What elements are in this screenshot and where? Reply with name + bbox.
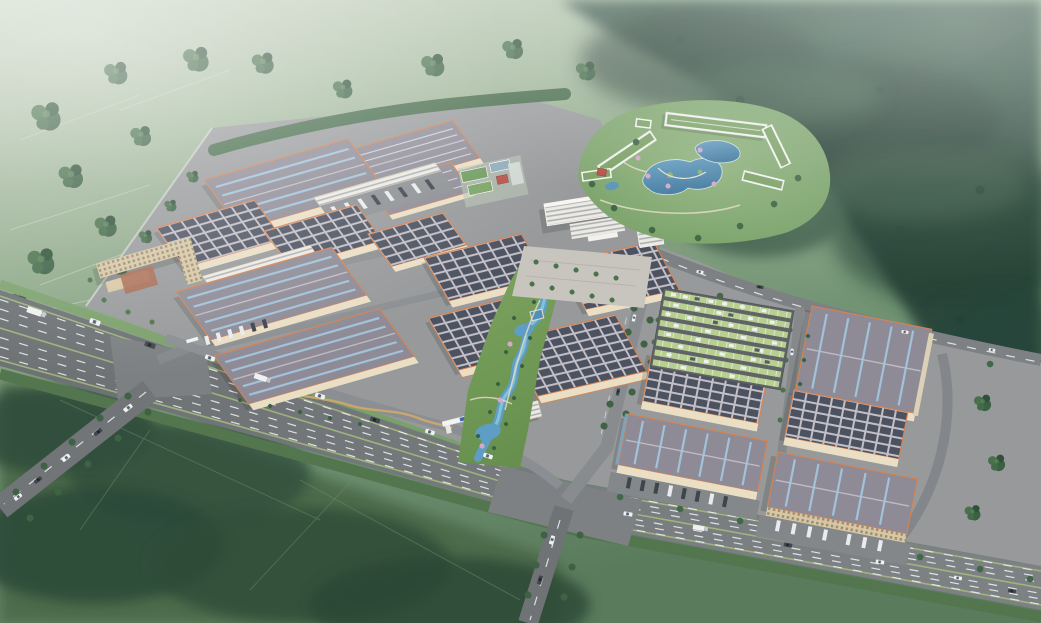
aerial-render: Aerial bird's-eye rendering of a logisti… <box>0 0 1041 623</box>
haze-overlay <box>0 0 1041 623</box>
industrial-park-scene: Aerial bird's-eye rendering of a logisti… <box>0 0 1041 623</box>
